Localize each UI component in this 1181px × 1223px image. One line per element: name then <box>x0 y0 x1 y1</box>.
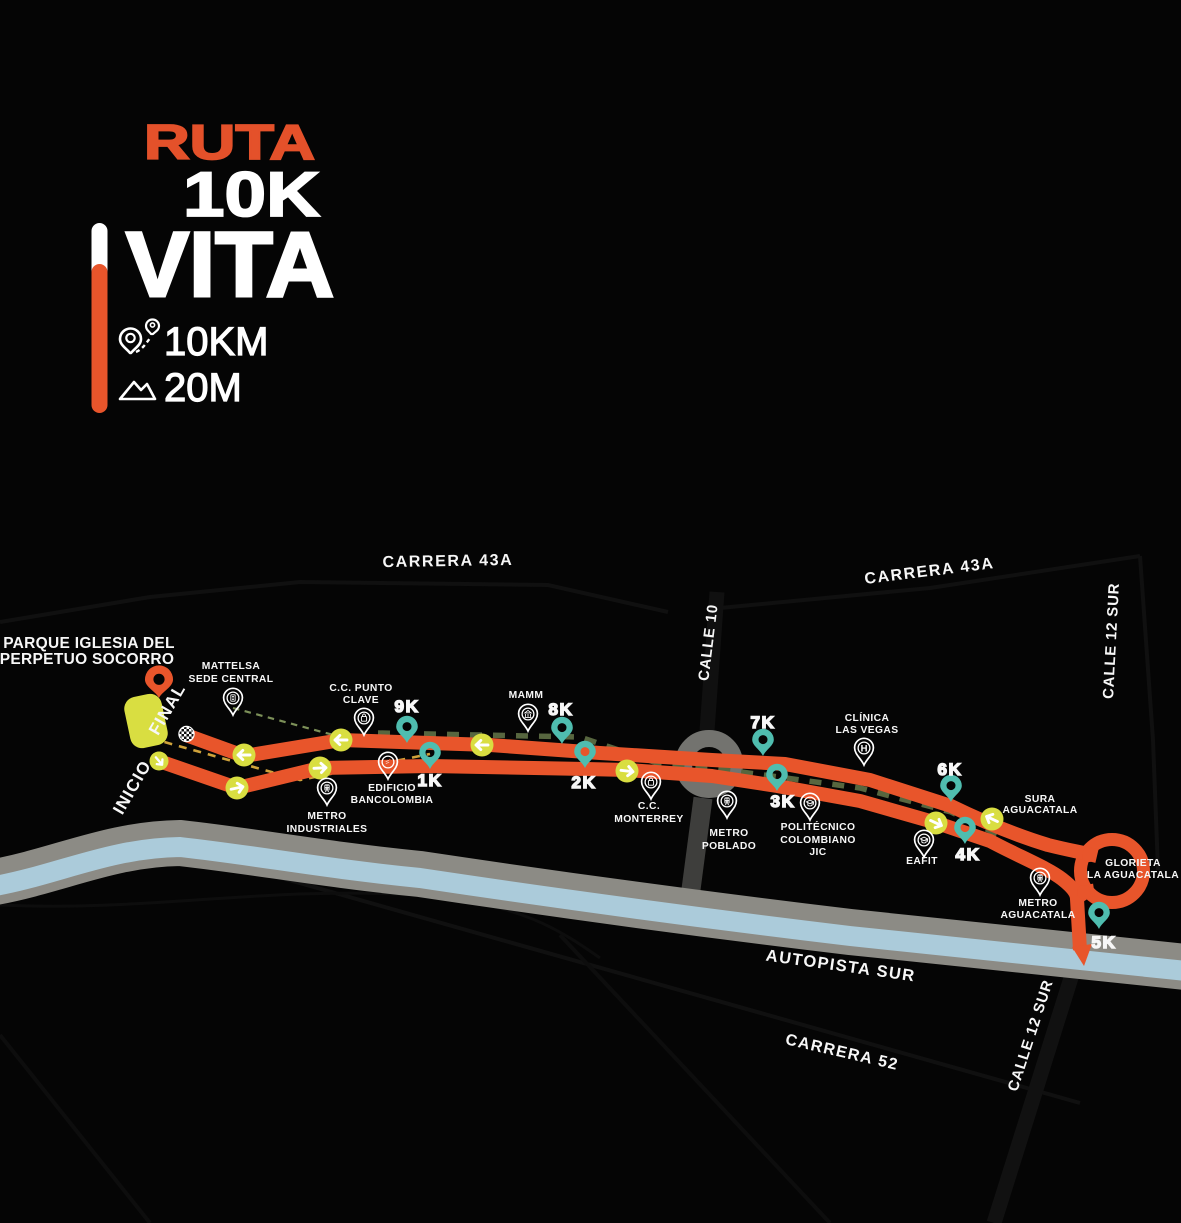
svg-text:VITA: VITA <box>126 214 334 316</box>
svg-text:5K: 5K <box>1092 933 1117 952</box>
svg-text:PARQUE IGLESIA DEL: PARQUE IGLESIA DEL <box>3 635 175 652</box>
svg-text:LAS VEGAS: LAS VEGAS <box>835 725 898 736</box>
svg-text:H: H <box>861 744 868 755</box>
svg-text:4K: 4K <box>956 845 981 864</box>
svg-text:POLITÉCNICO: POLITÉCNICO <box>781 820 856 833</box>
svg-text:SURA: SURA <box>1025 794 1056 805</box>
svg-text:JIC: JIC <box>809 847 826 858</box>
svg-text:BANCOLOMBIA: BANCOLOMBIA <box>351 795 434 806</box>
svg-text:9K: 9K <box>395 697 420 716</box>
svg-text:10KM: 10KM <box>164 320 269 364</box>
svg-text:EAFIT: EAFIT <box>906 856 938 867</box>
svg-text:SEDE CENTRAL: SEDE CENTRAL <box>189 674 274 685</box>
svg-text:C.C.: C.C. <box>638 801 660 812</box>
svg-text:INDUSTRIALES: INDUSTRIALES <box>287 824 368 835</box>
svg-text:LA AGUACATALA: LA AGUACATALA <box>1087 870 1179 881</box>
svg-text:PERPETUO SOCORRO: PERPETUO SOCORRO <box>0 651 174 668</box>
svg-text:METRO: METRO <box>307 811 346 822</box>
svg-text:METRO: METRO <box>709 828 748 839</box>
svg-text:C.C. PUNTO: C.C. PUNTO <box>329 683 392 694</box>
svg-text:8K: 8K <box>549 700 574 719</box>
svg-text:20M: 20M <box>164 366 242 410</box>
svg-text:7K: 7K <box>751 713 776 732</box>
svg-text:AGUACATALA: AGUACATALA <box>1000 910 1075 921</box>
svg-text:MONTERREY: MONTERREY <box>614 814 683 825</box>
svg-text:AGUACATALA: AGUACATALA <box>1002 805 1077 816</box>
svg-text:COLOMBIANO: COLOMBIANO <box>780 835 856 846</box>
svg-text:6K: 6K <box>938 760 963 779</box>
svg-text:1K: 1K <box>418 771 443 790</box>
svg-text:CLÍNICA: CLÍNICA <box>845 711 890 724</box>
svg-text:3K: 3K <box>771 792 796 811</box>
svg-text:POBLADO: POBLADO <box>702 841 756 852</box>
svg-text:EDIFICIO: EDIFICIO <box>368 783 416 794</box>
svg-text:CARRERA 43A: CARRERA 43A <box>382 552 513 571</box>
svg-text:2K: 2K <box>572 773 597 792</box>
svg-text:CLAVE: CLAVE <box>343 695 379 706</box>
svg-text:MATTELSA: MATTELSA <box>202 661 261 672</box>
svg-text:METRO: METRO <box>1018 898 1057 909</box>
svg-text:GLORIETA: GLORIETA <box>1105 858 1161 869</box>
svg-text:MAMM: MAMM <box>509 690 544 701</box>
